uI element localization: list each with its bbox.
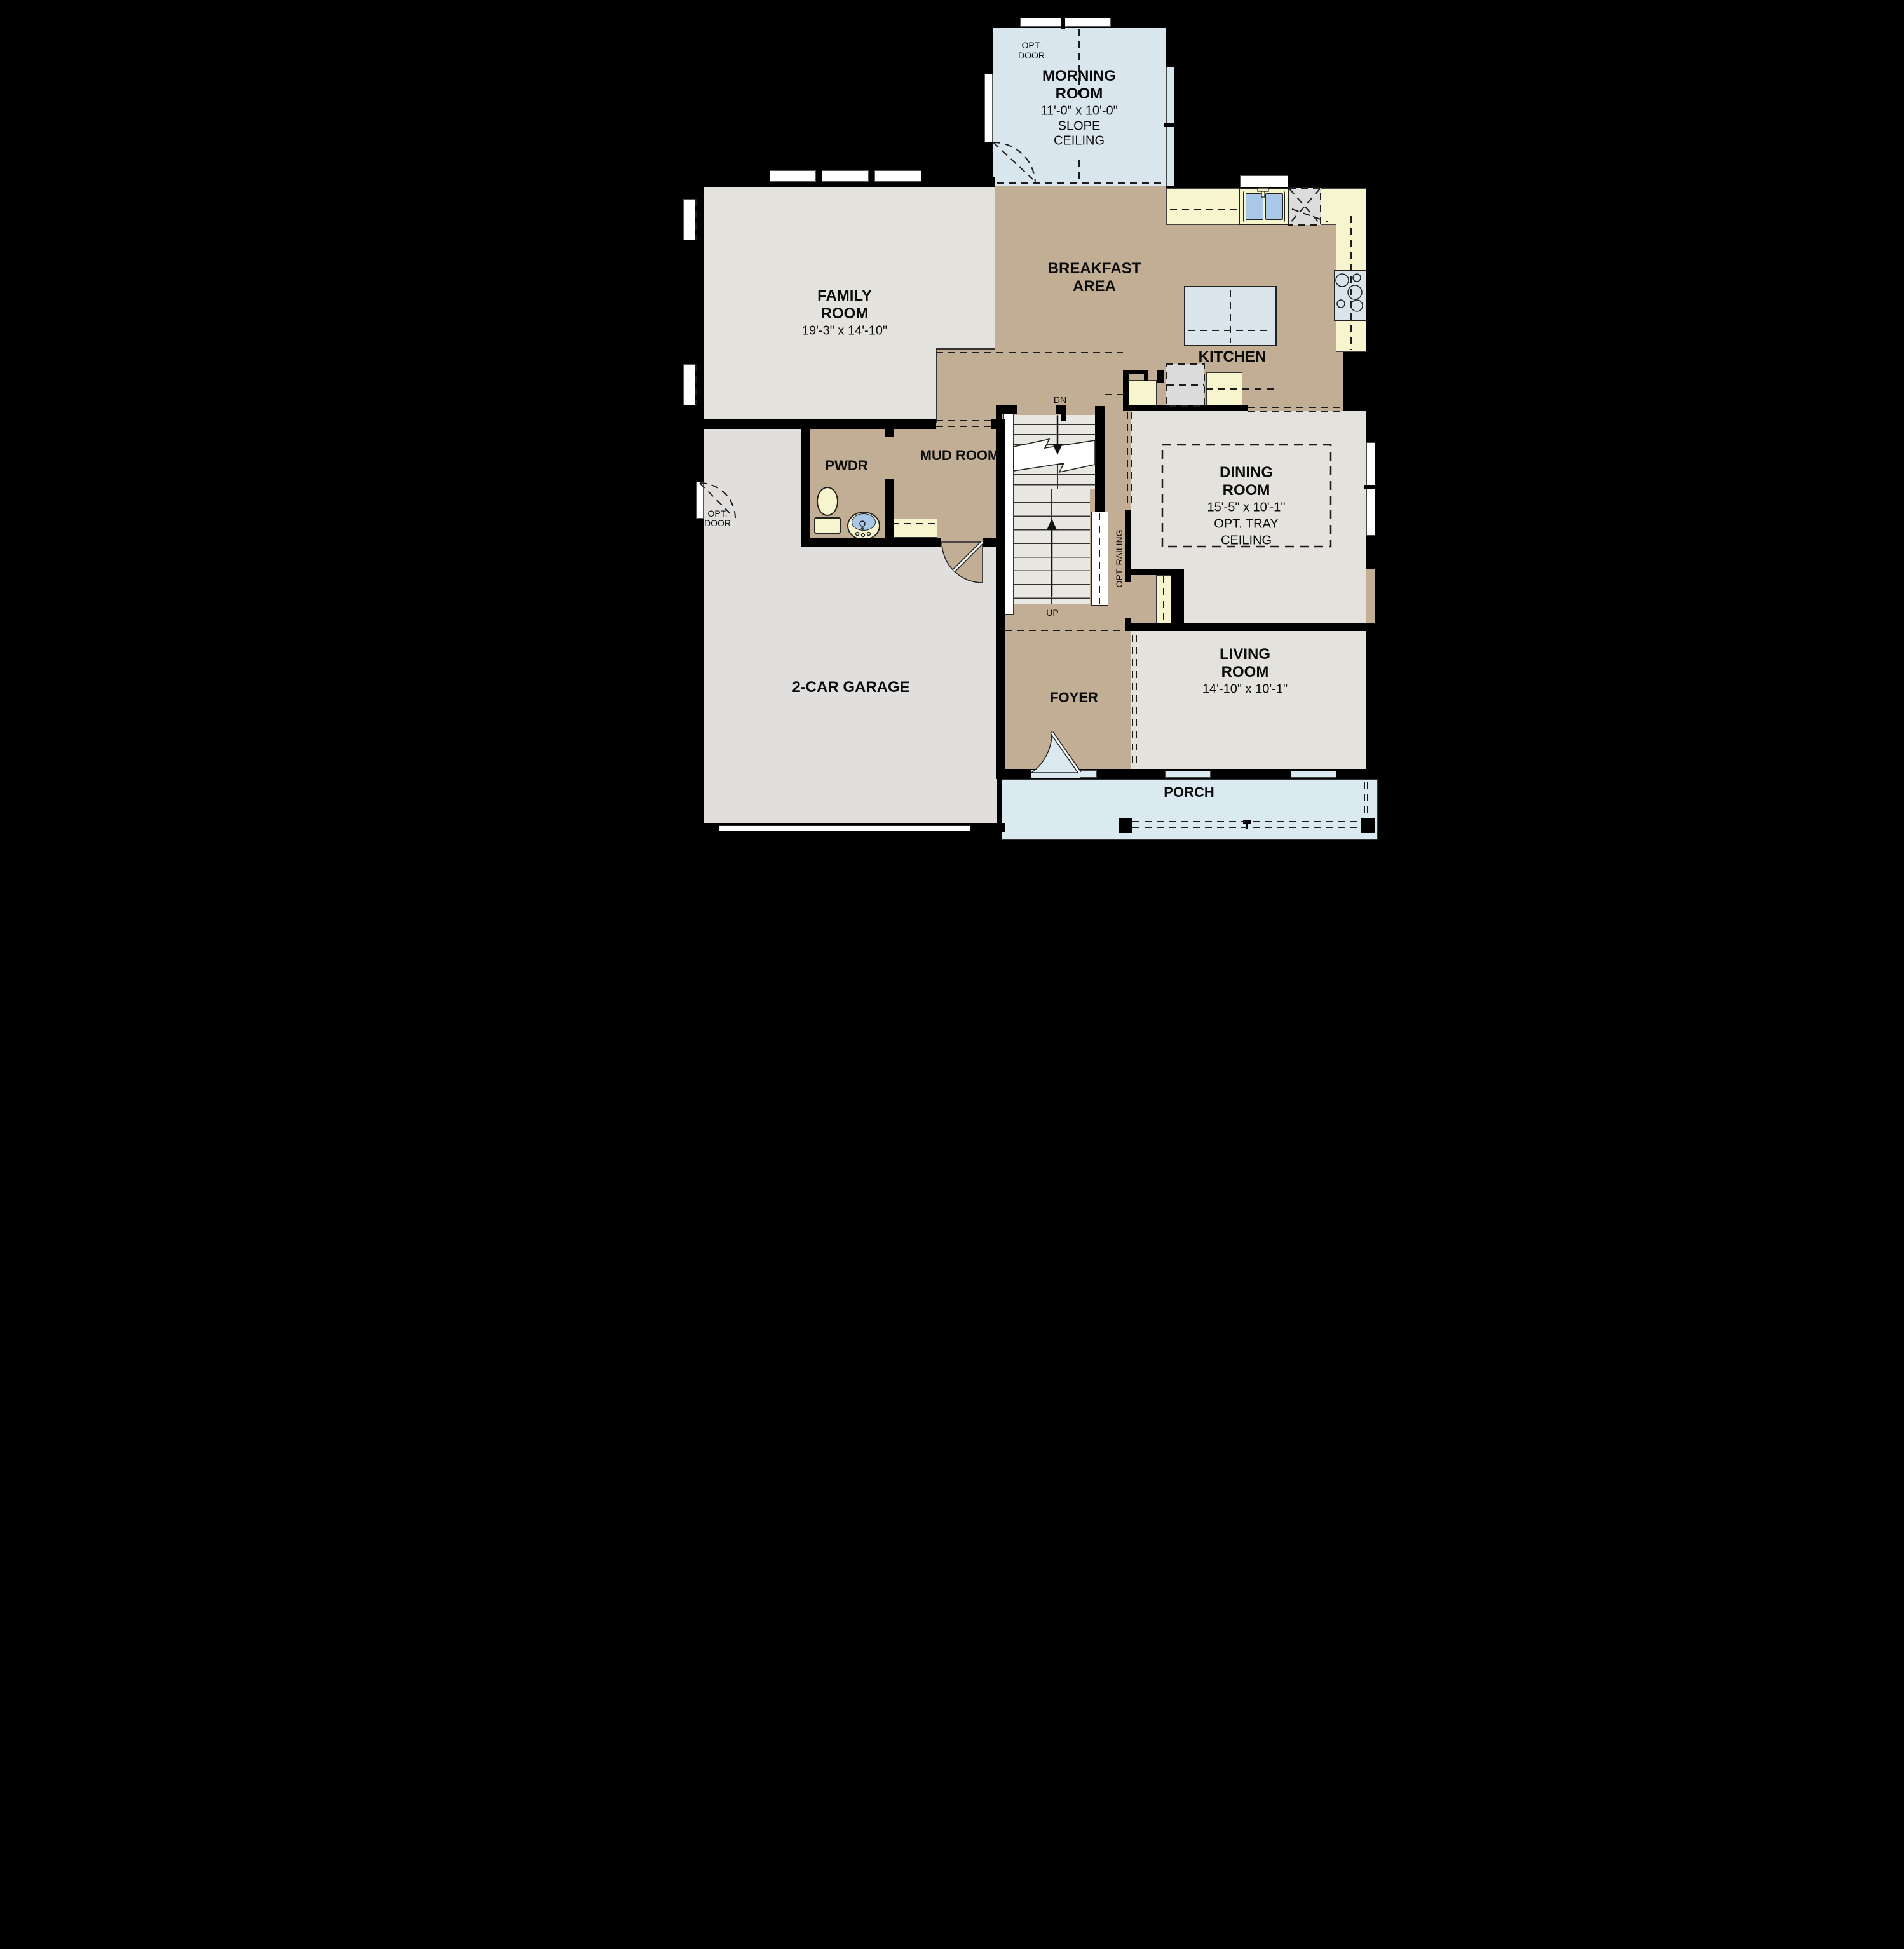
counter-corner-dash: [1292, 209, 1328, 222]
label-breakfast-area: BREAKFAST: [1048, 260, 1141, 278]
label-opt-door: DOOR: [1018, 50, 1045, 60]
label-dn: DN: [1054, 395, 1066, 405]
label-morning-room: MORNING: [1042, 67, 1116, 85]
label-family-room: ROOM: [821, 305, 869, 323]
label-opt-door-garage: DOOR: [704, 518, 731, 528]
label-up: UP: [1046, 608, 1058, 618]
label-kitchen: KITCHEN: [1199, 348, 1267, 366]
label-dining-note: CEILING: [1221, 534, 1272, 548]
label-garage: 2-CAR GARAGE: [792, 679, 909, 696]
label-living-room: ROOM: [1221, 663, 1269, 681]
morning-opt-door-swing: [993, 142, 1035, 184]
label-dining-dim: 15'-5" x 10'-1": [1207, 501, 1285, 515]
label-living-room: LIVING: [1220, 646, 1270, 663]
label-dining-room: ROOM: [1223, 482, 1270, 499]
floor-plan: MORNING ROOM 11'-0" x 10'-0" SLOPE CEILI…: [476, 0, 1428, 975]
plan-linework: [476, 0, 1428, 975]
label-pwdr: PWDR: [825, 458, 867, 474]
up-arrow-head: [1047, 519, 1057, 530]
label-family-room: FAMILY: [817, 287, 872, 305]
label-dining-note: OPT. TRAY: [1214, 517, 1279, 532]
label-foyer: FOYER: [1050, 689, 1098, 706]
pwdr-sink-detail: [856, 521, 871, 537]
morning-opt-door-leaf: [993, 142, 1033, 179]
label-porch: PORCH: [1164, 784, 1214, 801]
label-family-dim: 19'-3" x 14'-10": [802, 324, 887, 339]
label-mud-room: MUD ROOM: [920, 447, 1000, 464]
cooktop-burners: [1336, 274, 1363, 311]
label-opt-railing: OPT. RAILING: [1114, 529, 1124, 587]
label-dining-room: DINING: [1220, 464, 1273, 482]
label-breakfast-area: AREA: [1073, 278, 1116, 295]
kitchen-faucet: [1258, 188, 1268, 197]
label-morning-room: ROOM: [1056, 85, 1103, 103]
label-morning-note: CEILING: [1054, 134, 1105, 149]
label-morning-note: SLOPE: [1058, 119, 1101, 134]
label-opt-door: OPT.: [1021, 40, 1041, 50]
label-living-dim: 14'-10" x 10'-1": [1202, 682, 1288, 697]
label-opt-door-garage: OPT.: [707, 508, 727, 519]
label-morning-dim: 11'-0" x 10'-0": [1040, 104, 1118, 119]
